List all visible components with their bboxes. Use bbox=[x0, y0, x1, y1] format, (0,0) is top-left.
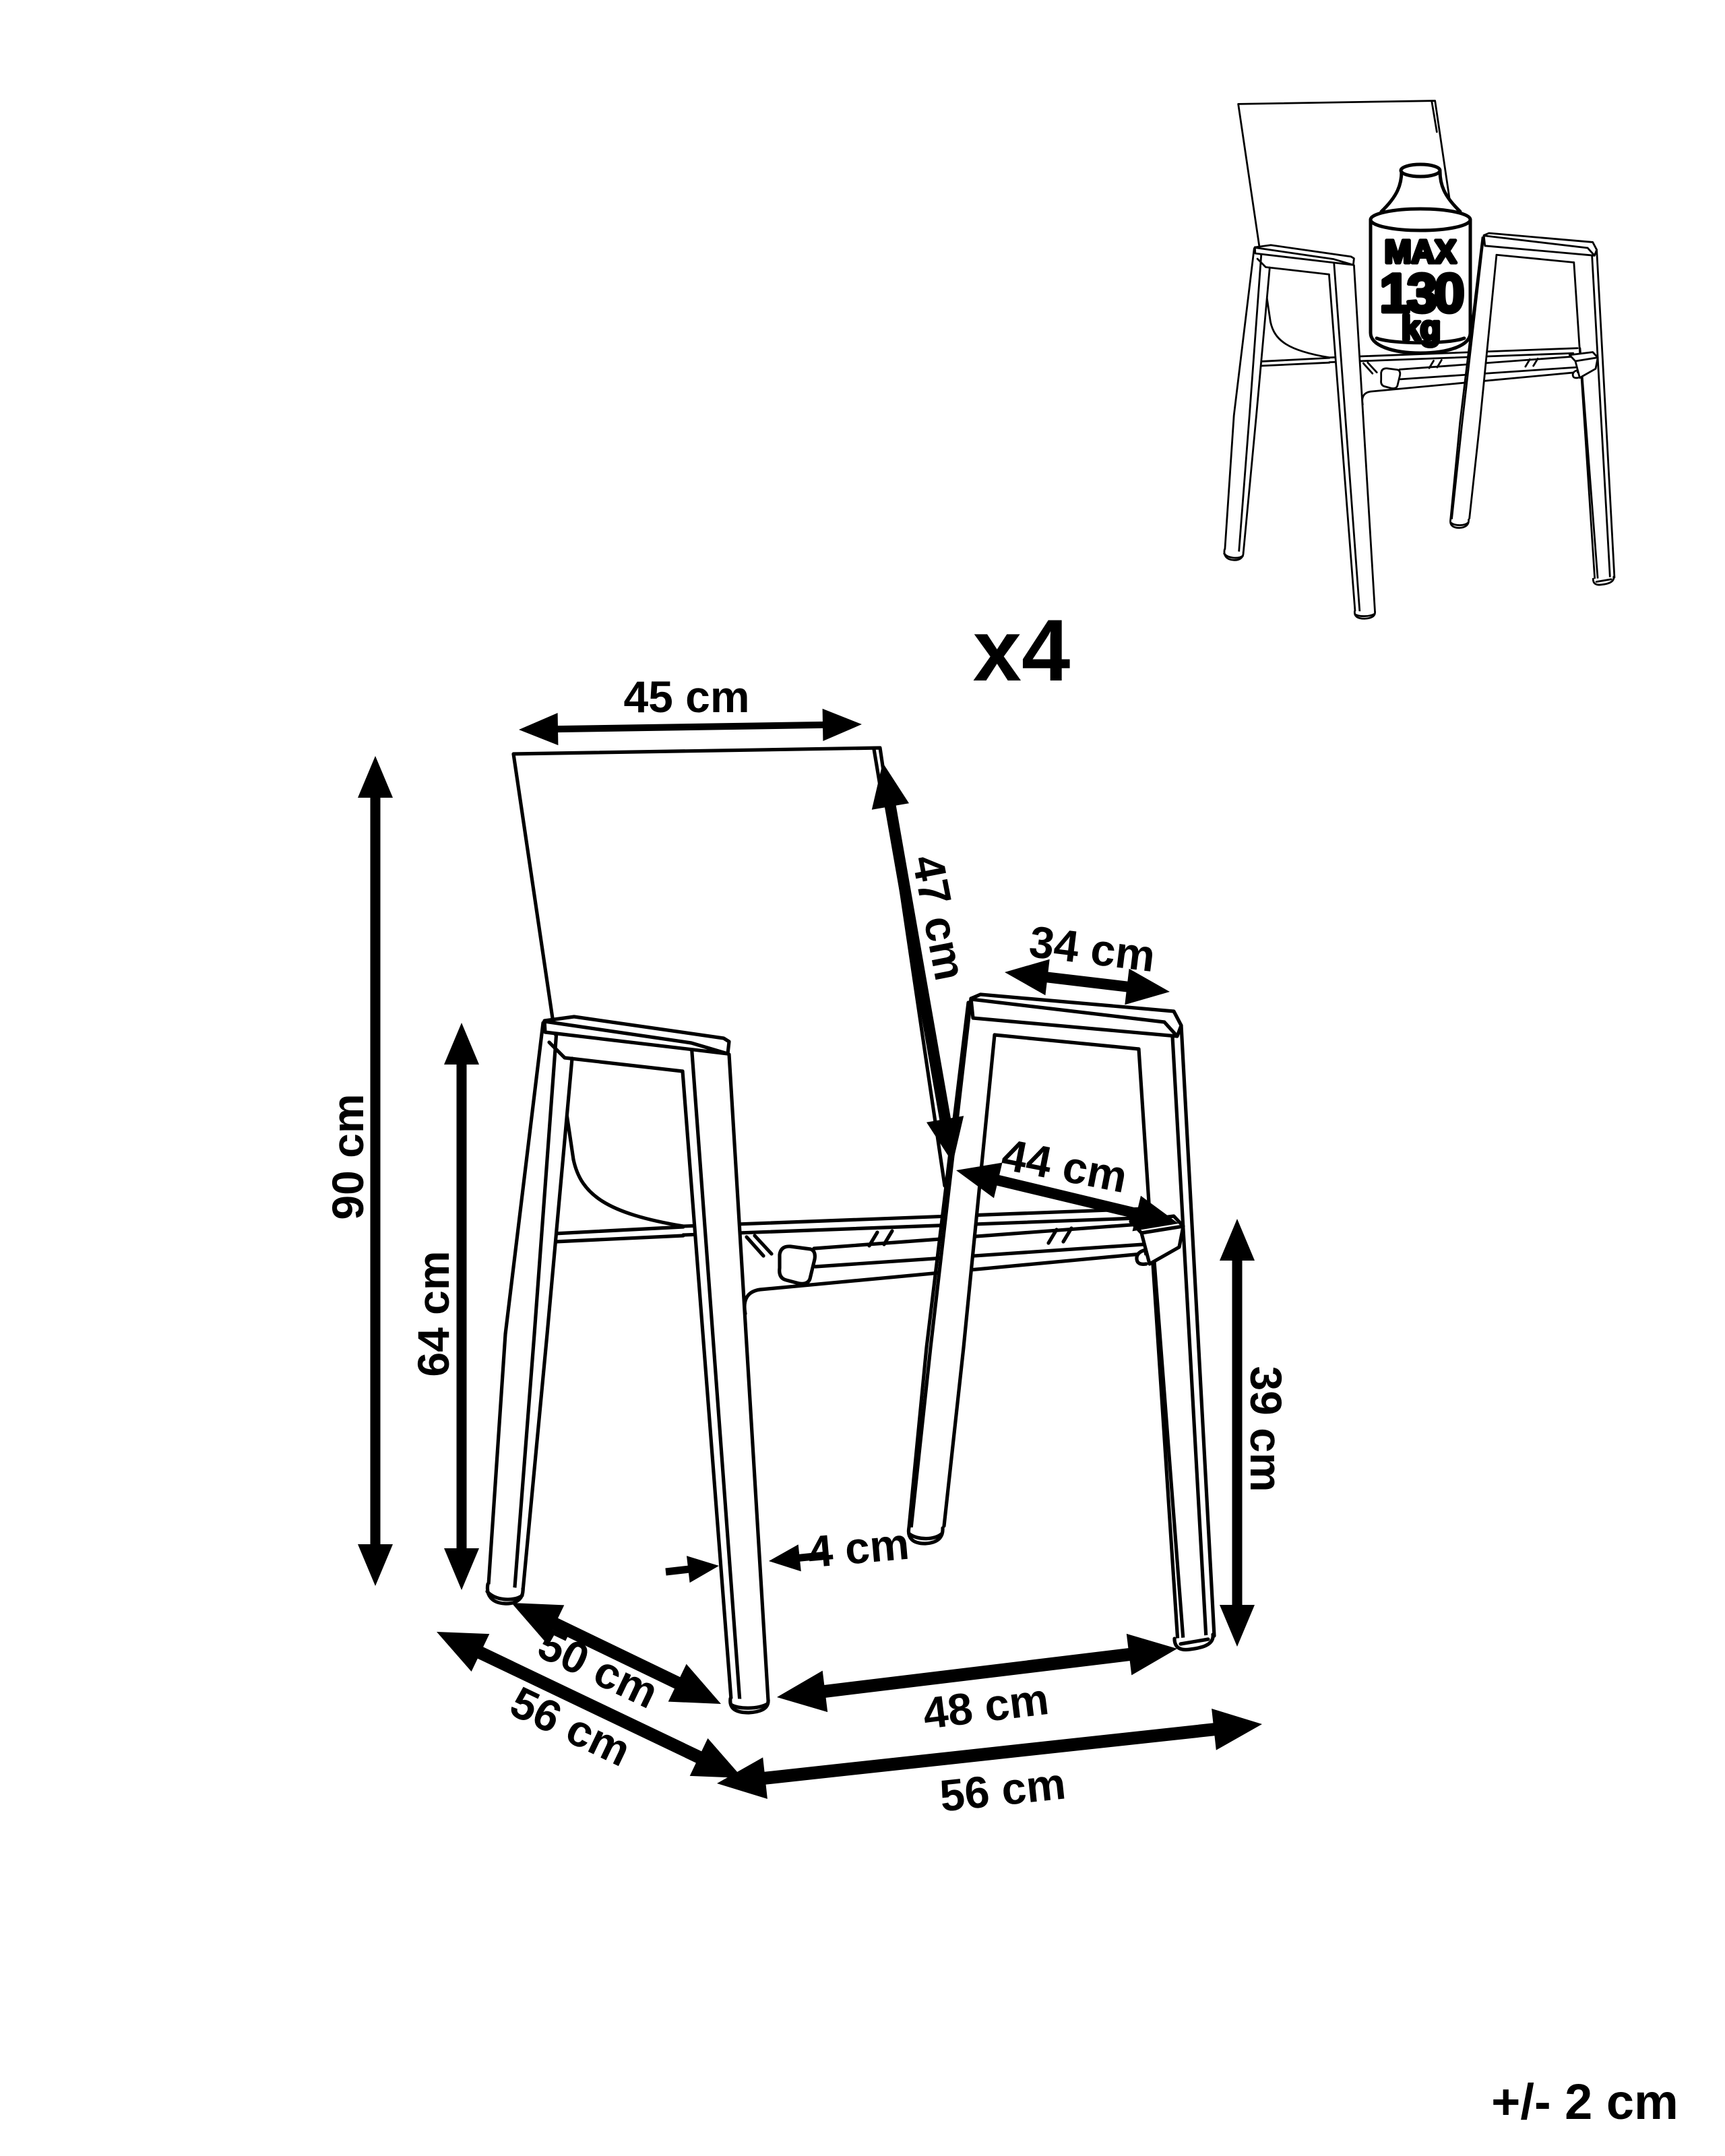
svg-text:kg: kg bbox=[1402, 309, 1441, 347]
svg-text:45 cm: 45 cm bbox=[623, 672, 749, 722]
svg-text:90 cm: 90 cm bbox=[323, 1093, 373, 1219]
svg-text:x4: x4 bbox=[973, 601, 1071, 699]
svg-text:4 cm: 4 cm bbox=[806, 1519, 911, 1577]
svg-text:39 cm: 39 cm bbox=[1241, 1366, 1291, 1492]
svg-text:+/- 2 cm: +/- 2 cm bbox=[1491, 2074, 1679, 2130]
svg-text:64 cm: 64 cm bbox=[408, 1250, 458, 1376]
